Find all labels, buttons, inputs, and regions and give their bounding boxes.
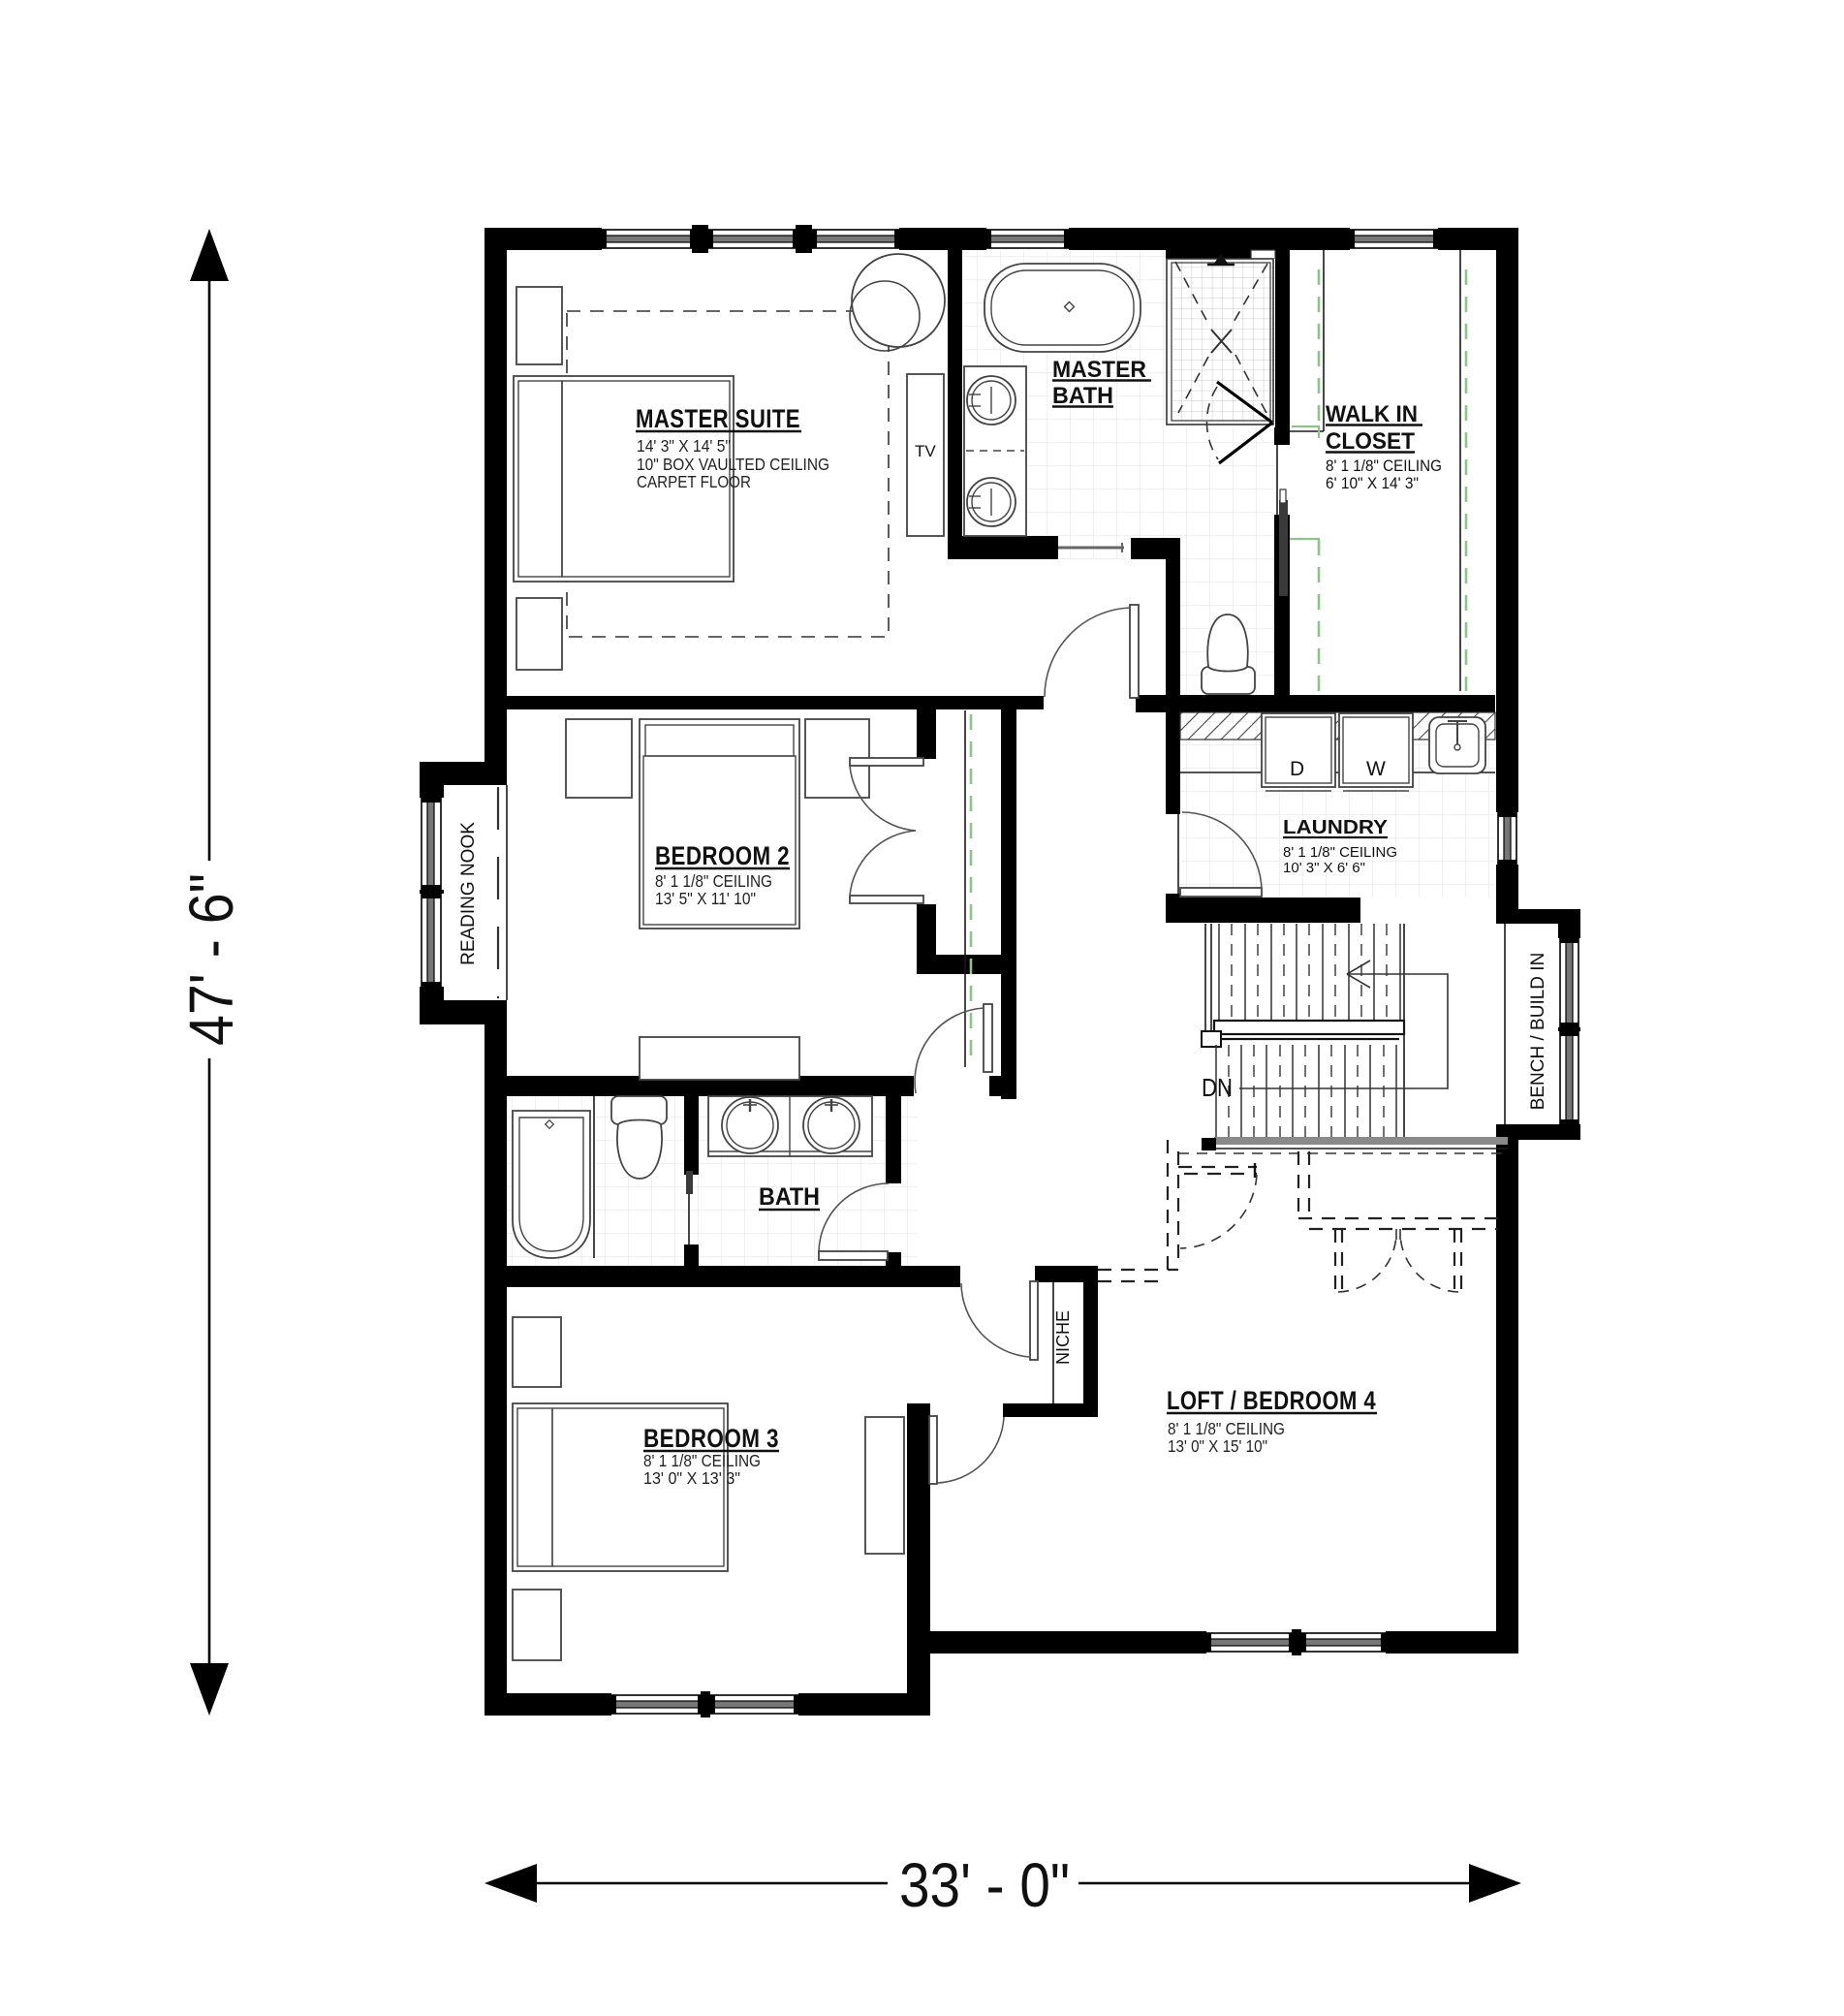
svg-text:8' 1 1/8" CEILING: 8' 1 1/8" CEILING	[643, 1451, 761, 1470]
svg-text:BATH: BATH	[759, 1183, 820, 1211]
svg-text:CLOSET: CLOSET	[1326, 428, 1415, 455]
svg-text:MASTER: MASTER	[1052, 357, 1146, 383]
svg-text:13' 0" X 15' 10": 13' 0" X 15' 10"	[1168, 1436, 1267, 1456]
svg-text:8' 1 1/8" CEILING: 8' 1 1/8" CEILING	[1326, 457, 1442, 475]
svg-text:LAUNDRY: LAUNDRY	[1283, 816, 1388, 838]
svg-text:6' 10" X 14' 3": 6' 10" X 14' 3"	[1326, 475, 1419, 492]
svg-text:W: W	[1366, 758, 1386, 780]
svg-text:BEDROOM 2: BEDROOM 2	[655, 841, 790, 870]
svg-text:33' - 0": 33' - 0"	[899, 1850, 1070, 1920]
svg-text:8' 1 1/8" CEILING: 8' 1 1/8" CEILING	[1168, 1419, 1285, 1438]
svg-text:DN: DN	[1202, 1073, 1233, 1102]
svg-text:14' 3" X 14' 5": 14' 3" X 14' 5"	[637, 436, 731, 456]
svg-text:10" BOX VAULTED CEILING: 10" BOX VAULTED CEILING	[637, 455, 829, 474]
svg-text:13' 0" X 13' 3": 13' 0" X 13' 3"	[643, 1468, 740, 1488]
svg-text:NICHE: NICHE	[1053, 1310, 1073, 1365]
svg-text:LOFT / BEDROOM 4: LOFT / BEDROOM 4	[1167, 1386, 1376, 1415]
svg-text:BENCH / BUILD IN: BENCH / BUILD IN	[1528, 953, 1548, 1111]
svg-text:8' 1 1/8" CEILING: 8' 1 1/8" CEILING	[1283, 845, 1397, 861]
svg-text:10' 3" X 6' 6": 10' 3" X 6' 6"	[1283, 861, 1365, 876]
svg-text:CARPET FLOOR: CARPET FLOOR	[637, 472, 751, 491]
svg-text:13' 5" X 11' 10": 13' 5" X 11' 10"	[655, 889, 756, 908]
svg-text:BEDROOM 3: BEDROOM 3	[643, 1424, 779, 1453]
svg-text:47' - 6": 47' - 6"	[176, 873, 246, 1046]
svg-text:BATH: BATH	[1052, 383, 1113, 409]
svg-text:TV: TV	[915, 442, 936, 460]
svg-text:D: D	[1290, 758, 1304, 780]
svg-text:8' 1 1/8" CEILING: 8' 1 1/8" CEILING	[655, 871, 772, 891]
svg-text:MASTER SUITE: MASTER SUITE	[636, 404, 800, 433]
svg-text:READING NOOK: READING NOOK	[458, 822, 479, 965]
svg-text:WALK IN: WALK IN	[1326, 401, 1418, 427]
